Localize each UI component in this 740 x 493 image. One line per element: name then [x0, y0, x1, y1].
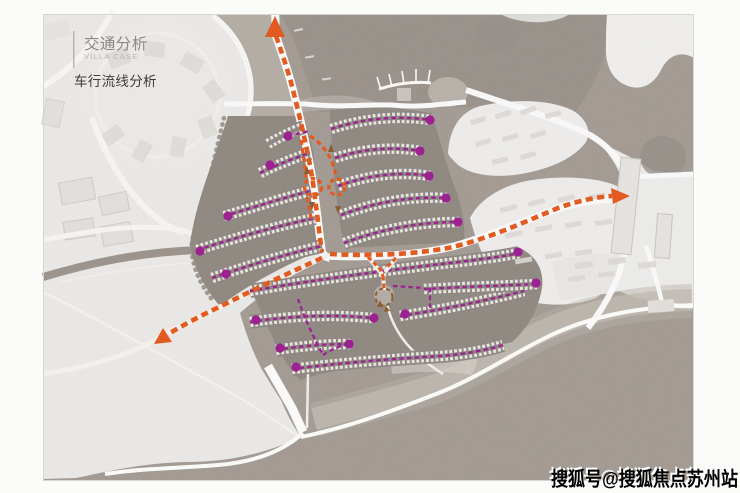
svg-text:交通分析: 交通分析: [84, 35, 148, 53]
svg-text:VILLA CASE: VILLA CASE: [84, 52, 139, 61]
svg-text:搜狐号@搜狐焦点苏州站: 搜狐号@搜狐焦点苏州站: [551, 468, 738, 491]
svg-text:车行流线分析: 车行流线分析: [74, 73, 157, 89]
